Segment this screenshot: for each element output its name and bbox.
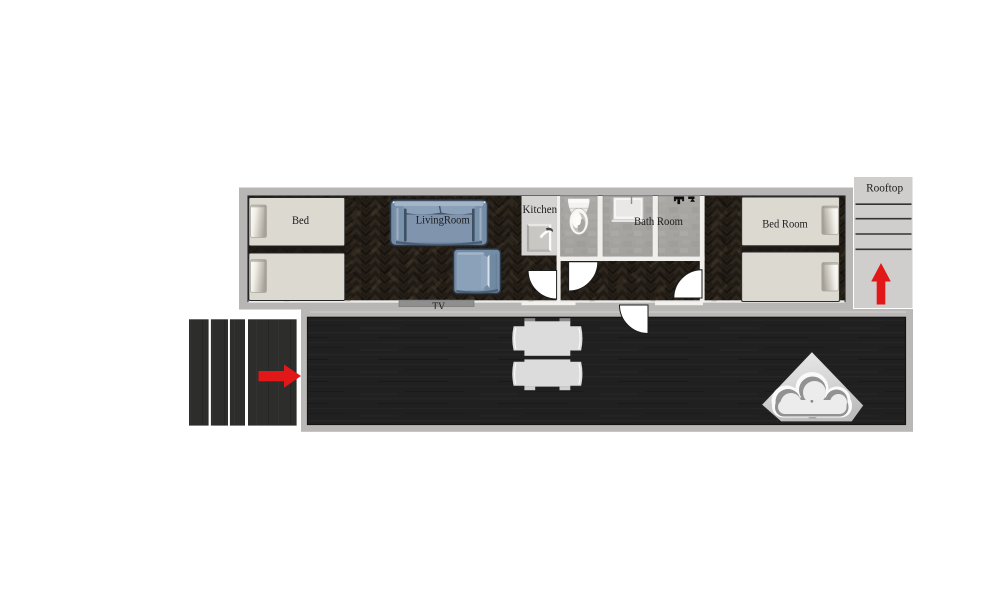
svg-text:Bath Room: Bath Room xyxy=(634,214,684,228)
svg-text:Bed Room: Bed Room xyxy=(762,216,808,230)
svg-text:LivingRoom: LivingRoom xyxy=(416,213,471,227)
svg-text:Kitchen: Kitchen xyxy=(523,202,558,216)
svg-text:Rooftop: Rooftop xyxy=(866,181,903,195)
svg-text:Bed: Bed xyxy=(292,213,309,227)
